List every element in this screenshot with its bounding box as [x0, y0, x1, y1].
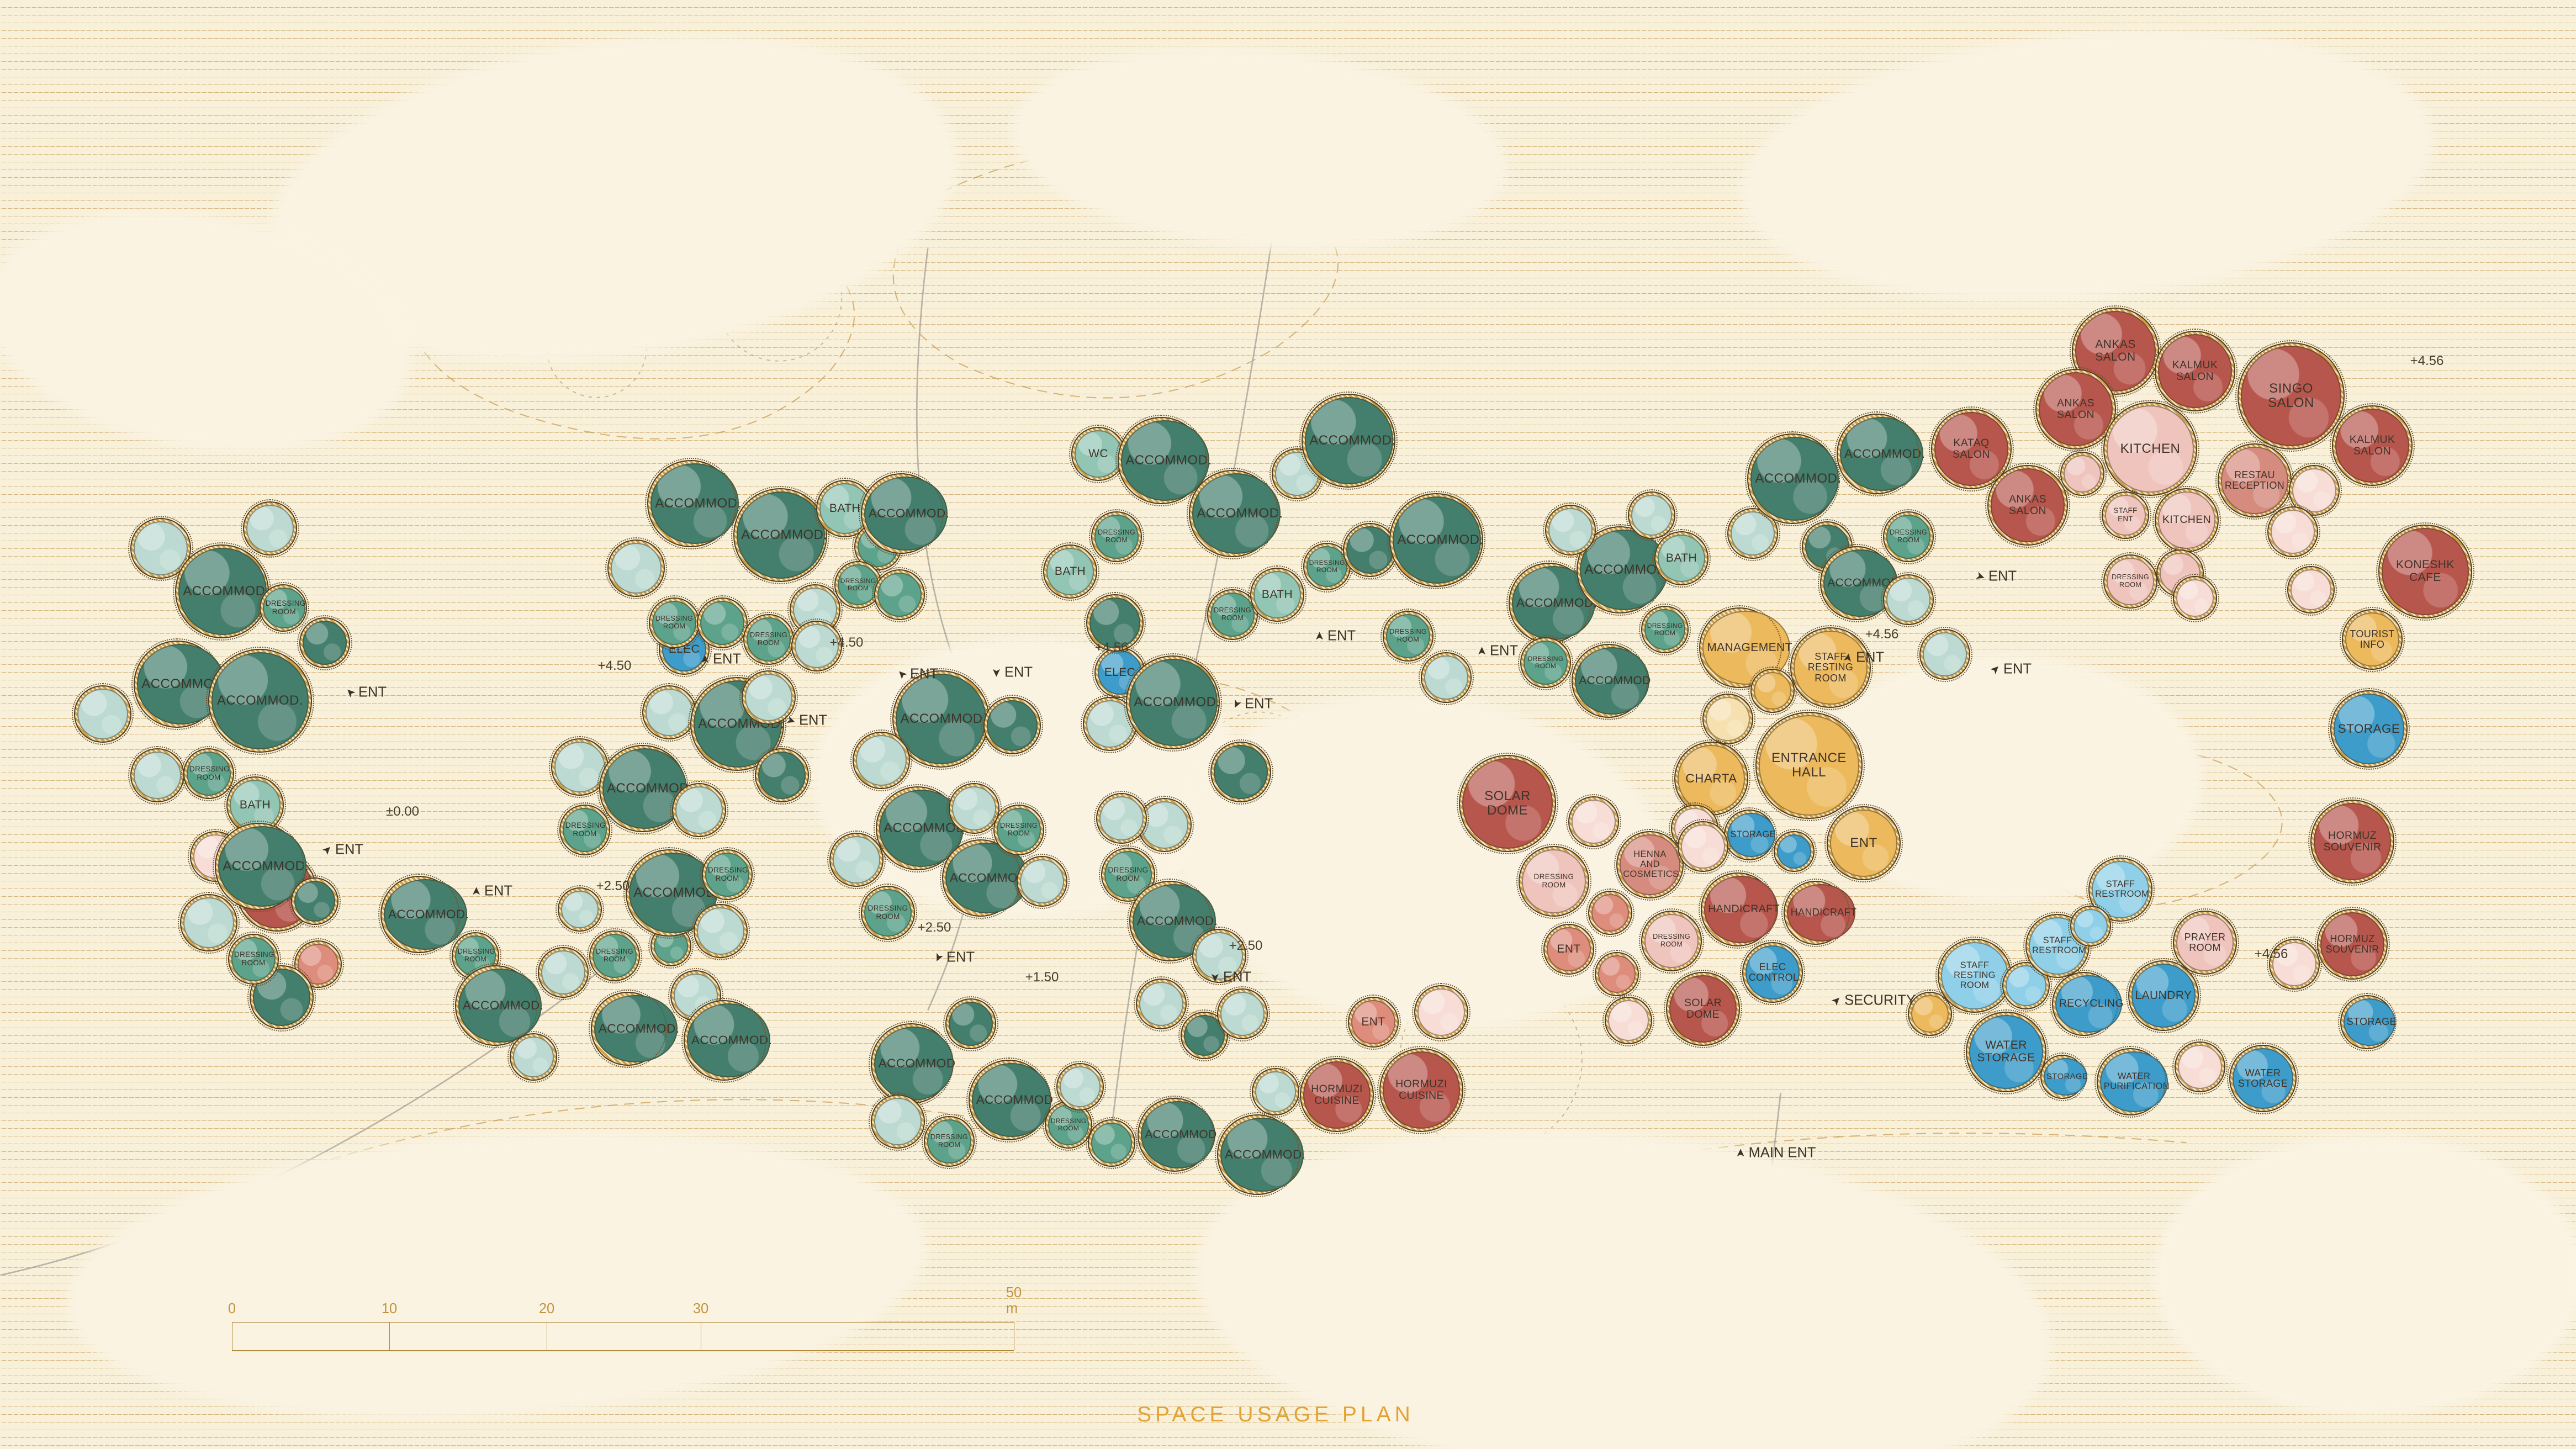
- dome: [1545, 505, 1596, 556]
- dome-label: BATH: [1256, 589, 1298, 601]
- annotation-ent: ➤ENT: [992, 665, 1033, 681]
- dome-dressing-room: DRESSING ROOM: [559, 805, 610, 855]
- dome-kitchen: KITCHEN: [2155, 488, 2219, 552]
- dome: [672, 783, 726, 837]
- annotation-security: ➤SECURITY: [1832, 993, 1916, 1009]
- annotation-ent: ➤ENT: [1843, 650, 1884, 666]
- dome-label: ACCOMMOD.: [741, 528, 821, 542]
- dome-label: ENT: [1549, 943, 1588, 956]
- annotation-text: ENT: [910, 667, 938, 683]
- dome-label: ACCOMMOD.: [1225, 1148, 1299, 1161]
- dome-label: ACCOMMOD.: [950, 871, 1024, 885]
- direction-arrow-icon: ➤: [1475, 646, 1489, 655]
- dome: [2060, 452, 2104, 496]
- dome-label: ACCOMMOD.: [1137, 914, 1212, 928]
- dome-dressing-room: DRESSING ROOM: [1091, 511, 1142, 562]
- dome-handicraft: HANDICRAFT: [1701, 872, 1775, 946]
- dome-label: STAFF RESTING ROOM: [1945, 961, 2005, 990]
- dome-accommod-: ACCOMMOD.: [591, 992, 665, 1066]
- elevation-label: +2.50: [1229, 938, 1263, 954]
- dome-koneshk-cafe: KONESHK CAFE: [2378, 525, 2472, 618]
- elevation-label: +4.56: [1865, 627, 1899, 642]
- dome-water-purification: WATER PURIFICATION: [2097, 1048, 2164, 1115]
- annotation-ent: ➤ENT: [700, 652, 741, 668]
- annotation-text: ENT: [713, 652, 741, 668]
- dome-label: WATER PURIFICATION: [2104, 1072, 2165, 1092]
- dome-label: ENT: [1834, 836, 1894, 850]
- dome-label: ACCOMMOD.: [633, 886, 713, 900]
- dome-dressing-room: DRESSING ROOM: [993, 805, 1044, 855]
- dome: [130, 748, 184, 802]
- dome-label: WATER STORAGE: [2236, 1068, 2290, 1090]
- dome-dressing-room: DRESSING ROOM: [702, 849, 753, 900]
- dome-label: DRESSING ROOM: [655, 615, 694, 630]
- annotation-text: ENT: [335, 842, 363, 858]
- dome-label: DRESSING ROOM: [840, 578, 876, 592]
- dome-label: ACCOMMOD: [1579, 675, 1645, 688]
- dome-label: SOLAR DOME: [1673, 997, 1733, 1020]
- dome: [874, 569, 925, 620]
- dome-label: ACCOMMOD: [1827, 577, 1893, 590]
- dome-label: DRESSING ROOM: [565, 822, 604, 838]
- dome-label: DRESSING ROOM: [1889, 529, 1928, 544]
- scale-bar-tick: [547, 1322, 547, 1350]
- dome-label: PRAYER ROOM: [2180, 932, 2230, 954]
- dome-water-storage: WATER STORAGE: [2229, 1045, 2297, 1112]
- scale-bar-bottom-line: [232, 1350, 1014, 1351]
- scale-bar-tick: [389, 1322, 390, 1350]
- dome-hormuz-souvenir: HORMUZ SOUVENIR: [2317, 909, 2388, 980]
- dome-label: STORAGE: [2337, 722, 2400, 736]
- dome-label: ACCOMMOD: [607, 781, 683, 796]
- dome: [538, 947, 589, 998]
- dome-dressing-room: DRESSING ROOM: [649, 597, 700, 648]
- dome-staff-ent: STAFF ENT: [2102, 491, 2149, 539]
- dome-bath: BATH: [1250, 568, 1304, 622]
- dome-accommod-: ACCOMMOD.: [1302, 394, 1395, 488]
- annotation-ent: ➤ENT: [934, 950, 975, 966]
- dome-label: STAFF ENT: [2108, 507, 2143, 523]
- dome: [1883, 574, 1934, 625]
- dome-label: DRESSING ROOM: [1051, 1118, 1086, 1132]
- dome-label: ACCOMMOD.: [1134, 695, 1213, 710]
- dome-dressing-room: DRESSING ROOM: [589, 930, 640, 981]
- dome-ankas-salon: ANKAS SALON: [2035, 369, 2116, 449]
- direction-arrow-icon: ➤: [990, 668, 1003, 677]
- dome-label: STORAGE: [2046, 1072, 2085, 1081]
- dome-label: ACCOMMOD.: [900, 712, 981, 726]
- dome-label: DRESSING ROOM: [749, 632, 788, 647]
- dome: [2175, 1041, 2225, 1092]
- dome-elec-control: ELEC CONTROL: [1742, 942, 1803, 1003]
- dome-label: KITCHEN: [2111, 442, 2189, 456]
- dome-solar-dome: SOLAR DOME: [1666, 972, 1740, 1046]
- dome-accommod-: ACCOMMOD.: [215, 823, 302, 910]
- dome-dressing-room: DRESSING ROOM: [1641, 606, 1689, 653]
- dome-label: SINGO SALON: [2246, 382, 2336, 410]
- dome: [1774, 831, 1815, 872]
- dome-accommod: ACCOMMOD: [969, 1060, 1049, 1140]
- dome-label: KITCHEN: [2161, 514, 2212, 526]
- annotation-text: ENT: [1856, 650, 1884, 666]
- dome-label: ANKAS SALON: [2043, 398, 2109, 421]
- dome: [2070, 906, 2111, 946]
- dome-label: LAUNDRY: [2135, 990, 2192, 1002]
- dome-label: DRESSING ROOM: [458, 948, 493, 963]
- sand-patch: [2154, 1135, 2576, 1416]
- dome-accommod-: ACCOMMOD.: [1126, 655, 1220, 749]
- dome-label: DRESSING ROOM: [867, 905, 908, 921]
- dome-accommod: ACCOMMOD: [871, 1023, 951, 1104]
- dome-label: ACCOMMOD: [879, 1057, 950, 1070]
- dome-singo-salon: SINGO SALON: [2238, 342, 2345, 449]
- dome-ent: ENT: [1543, 924, 1594, 975]
- dome-label: ACCOMMOD.: [1125, 453, 1205, 468]
- dome: [510, 1033, 557, 1081]
- dome-label: KALMUK SALON: [2162, 359, 2228, 383]
- dome-label: ENT: [1354, 1016, 1393, 1029]
- annotation-text: ENT: [1490, 643, 1518, 659]
- dome-water-storage: WATER STORAGE: [1966, 1012, 2046, 1092]
- dome-label: STORAGE: [1730, 830, 1772, 840]
- dome-label: DRESSING ROOM: [234, 951, 273, 967]
- dome-accommod-: ACCOMMOD.: [733, 488, 827, 582]
- elevation-label: +2.50: [918, 920, 951, 935]
- direction-arrow-icon: ➤: [1208, 972, 1222, 982]
- dome-label: ACCOMMOD.: [1584, 563, 1664, 577]
- scale-bar-tick: [701, 1322, 701, 1350]
- dome: [1588, 891, 1632, 935]
- dome-label: DRESSING ROOM: [2109, 574, 2151, 589]
- dome-label: DRESSING ROOM: [999, 822, 1038, 837]
- dome-label: ACCOMMOD.: [183, 584, 262, 599]
- dome-dressing-room: DRESSING ROOM: [260, 584, 307, 632]
- dome-label: ELEC CONTROL: [1749, 962, 1796, 983]
- dome-storage: STORAGE: [2340, 995, 2394, 1049]
- dome-label: HORMUZ SOUVENIR: [2324, 934, 2381, 955]
- dome-label: ACCOMMOD.: [216, 694, 304, 708]
- dome-label: DRESSING ROOM: [1389, 628, 1427, 643]
- dome: [1702, 694, 1753, 744]
- dome-label: ACCOMMOD.: [691, 1034, 766, 1047]
- dome-label: HORMUZ SOUVENIR: [2318, 830, 2387, 853]
- dome-restau-reception: RESTAU RECEPTION: [2218, 443, 2292, 517]
- dome: [1595, 952, 1639, 996]
- dome: [299, 617, 350, 668]
- annotation-text: ENT: [1004, 665, 1033, 681]
- dome-dressing-room: DRESSING ROOM: [861, 886, 915, 940]
- dome-label: DRESSING ROOM: [1097, 529, 1136, 544]
- dome: [853, 732, 910, 789]
- dome-label: RECYCLING: [2059, 998, 2119, 1009]
- dome-label: DRESSING ROOM: [708, 866, 747, 882]
- dome-label: ENTRANCE HALL: [1764, 751, 1854, 780]
- dome-label: DRESSING ROOM: [595, 948, 634, 963]
- dome-accommod-: ACCOMMOD.: [647, 460, 734, 547]
- dome-label: DRESSING ROOM: [1107, 866, 1149, 882]
- dome-tourist-info: TOURIST INFO: [2342, 609, 2403, 670]
- dome: [1210, 742, 1271, 802]
- scale-bar-top-line: [232, 1322, 1014, 1323]
- dome-accommod-: ACCOMMOD.: [380, 876, 458, 953]
- annotation-ent: ➤ENT: [1210, 970, 1251, 986]
- dome: [1568, 796, 1619, 847]
- dome-hormuzi-cuisine: HORMUZI CUISINE: [1379, 1048, 1463, 1132]
- dome-accommod-: ACCOMMOD.: [455, 965, 536, 1046]
- dome-label: ANKAS SALON: [2080, 339, 2152, 363]
- dome-charta: CHARTA: [1674, 742, 1748, 816]
- dome: [180, 894, 237, 951]
- dome-accommod-: ACCOMMOD.: [1389, 493, 1483, 587]
- dome-recycling: RECYCLING: [2052, 972, 2116, 1036]
- dome-accommod: ACCOMMOD: [1138, 1098, 1212, 1172]
- dome-storage: STORAGE: [2040, 1055, 2085, 1099]
- dome: [2287, 566, 2335, 614]
- elevation-label: +4.56: [2255, 946, 2288, 962]
- dome-label: HANDICRAFT: [1708, 903, 1774, 915]
- dome-label: DRESSING ROOM: [1309, 559, 1345, 574]
- dome-dressing-room: DRESSING ROOM: [1883, 511, 1934, 562]
- dome: [1088, 1119, 1135, 1167]
- dome: [1096, 793, 1147, 844]
- dome-hormuz-souvenir: HORMUZ SOUVENIR: [2310, 800, 2394, 884]
- annotation-ent: ➤ENT: [1232, 696, 1273, 712]
- dome: [1136, 979, 1187, 1029]
- dome: [1252, 1068, 1299, 1115]
- annotation-ent: ➤ENT: [1477, 643, 1518, 659]
- dome: [1750, 669, 1795, 713]
- dome: [1017, 856, 1067, 907]
- annotation-text: MAIN ENT: [1749, 1145, 1816, 1161]
- dome-label: STORAGE: [2347, 1017, 2393, 1027]
- dome: [1628, 491, 1675, 539]
- annotation-text: ENT: [1245, 696, 1273, 712]
- dome-label: HANDICRAFT: [1791, 907, 1852, 918]
- dome-storage: STORAGE: [2330, 690, 2408, 768]
- dome: [949, 783, 999, 834]
- dome-label: ACCOMMOD.: [463, 999, 537, 1012]
- annotation-ent: ➤ENT: [322, 842, 363, 858]
- elevation-label: +4.56: [2410, 353, 2444, 369]
- scale-bar-tick: [1014, 1322, 1014, 1350]
- dome: [2173, 576, 2217, 620]
- dome-label: ACCOMMOD.: [1197, 506, 1276, 521]
- dome-laundry: LAUNDRY: [2128, 960, 2199, 1031]
- dome-label: DRESSING ROOM: [189, 765, 228, 781]
- scale-bar-label: 10: [382, 1301, 397, 1317]
- dome-accommod-: ACCOMMOD.: [175, 544, 269, 638]
- dome-label: ACCOMMOD.: [223, 859, 302, 874]
- direction-arrow-icon: ➤: [1974, 568, 1987, 584]
- scale-bar-label: 20: [539, 1301, 554, 1317]
- annotation-ent: ➤ENT: [346, 685, 387, 701]
- dome: [607, 540, 665, 597]
- direction-arrow-icon: ➤: [698, 654, 712, 664]
- annotation-text: ENT: [1988, 569, 2017, 585]
- annotation-text: ENT: [1327, 628, 1356, 644]
- dome-label: BATH: [1049, 565, 1091, 578]
- dome: [755, 748, 809, 802]
- dome-wc: WC: [1071, 427, 1125, 481]
- dome-hormuzi-cuisine: HORMUZI CUISINE: [1300, 1058, 1374, 1132]
- dome: [697, 597, 748, 648]
- dome-label: DRESSING ROOM: [1526, 655, 1565, 670]
- dome-label: WATER STORAGE: [1973, 1039, 2039, 1064]
- dome-ent: ENT: [1348, 997, 1399, 1048]
- dome-bath: BATH: [1043, 544, 1097, 599]
- dome-label: WC: [1077, 448, 1119, 461]
- dome-accommod-: ACCOMMOD.: [1837, 414, 1917, 494]
- direction-arrow-icon: ➤: [1734, 1148, 1748, 1157]
- dome-label: ACCOMMOD.: [388, 908, 463, 921]
- direction-arrow-icon: ➤: [1313, 631, 1326, 641]
- dome-prayer-room: PRAYER ROOM: [2173, 911, 2237, 975]
- dome-storage: STORAGE: [1724, 810, 1775, 860]
- dome-label: HORMUZI CUISINE: [1387, 1078, 1456, 1102]
- dome-staff-resting-room: STAFF RESTING ROOM: [1790, 627, 1871, 708]
- dome-label: ACCOMMOD.: [869, 507, 943, 520]
- annotation-ent: ➤ENT: [1991, 662, 2032, 678]
- dome-accommod-: ACCOMMOD.: [1118, 417, 1205, 504]
- dome-accommod-: ACCOMMOD.: [861, 473, 941, 554]
- direction-arrow-icon: ➤: [784, 712, 798, 728]
- dome: [558, 887, 602, 932]
- dome-label: STAFF RESTROOM: [2095, 880, 2146, 900]
- dome: [983, 697, 1041, 754]
- dome-label: ACCOMMOD.: [1516, 596, 1591, 610]
- dome-kalmuk-salon: KALMUK SALON: [2155, 331, 2235, 411]
- dome-accommod-: ACCOMMOD.: [134, 641, 221, 728]
- annotation-text: ENT: [946, 950, 975, 966]
- dome: [291, 877, 338, 925]
- annotation-ent: ➤ENT: [1315, 628, 1356, 644]
- annotation-ent: ➤ENT: [472, 884, 512, 900]
- dome: [1217, 988, 1268, 1039]
- dome-label: RESTAU RECEPTION: [2225, 470, 2285, 491]
- dome: [74, 685, 131, 743]
- dome: [1414, 985, 1468, 1039]
- dome-dressing-room: DRESSING ROOM: [183, 748, 234, 799]
- dome: [945, 998, 996, 1049]
- dome-label: ACCOMMOD.: [1755, 472, 1834, 486]
- annotation-text: ENT: [1223, 970, 1251, 986]
- dome-label: KONESHK CAFE: [2386, 559, 2464, 584]
- annotation-text: SECURITY: [1844, 993, 1916, 1009]
- dome-dressing-room: DRESSING ROOM: [1519, 846, 1589, 917]
- scale-bar-tick: [232, 1322, 232, 1350]
- dome-kalmuk-salon: KALMUK SALON: [2332, 405, 2413, 486]
- dome-dressing-room: DRESSING ROOM: [1383, 611, 1434, 662]
- dome-label: SOLAR DOME: [1467, 789, 1548, 818]
- dome-label: DRESSING ROOM: [266, 600, 303, 616]
- dome-label: ACCOMMOD.: [1844, 447, 1919, 461]
- dome-label: HENNA AND COSMETICS: [1623, 850, 1677, 879]
- dome-label: ANKAS SALON: [1995, 494, 2061, 517]
- scale-bar-label: 0: [228, 1301, 236, 1317]
- dome-dressing-room: DRESSING ROOM: [1641, 911, 1702, 971]
- dome-label: BATH: [1660, 552, 1702, 565]
- elevation-label: ±0.00: [386, 804, 419, 819]
- elevation-label: +4.50: [598, 658, 632, 674]
- dome-accommod-: ACCOMMOD.: [1217, 1114, 1298, 1195]
- dome-entrance-hall: ENTRANCE HALL: [1755, 712, 1863, 819]
- dome-label: DRESSING ROOM: [930, 1134, 969, 1149]
- dome: [642, 685, 696, 739]
- dome-dressing-room: DRESSING ROOM: [1520, 637, 1571, 688]
- dome-dressing-room: DRESSING ROOM: [2103, 554, 2157, 609]
- dome: [871, 1094, 925, 1149]
- dome-label: DRESSING ROOM: [1213, 607, 1252, 622]
- dome-staff-resting-room: STAFF RESTING ROOM: [1938, 939, 2012, 1013]
- space-usage-plan: ACCOMMOD.DRESSING ROOMACCOMMOD.ACCOMMOD.…: [0, 0, 2576, 1449]
- direction-arrow-icon: ➤: [469, 886, 483, 896]
- dome-handicraft: HANDICRAFT: [1784, 881, 1848, 945]
- elevation-label: +4.56: [1095, 640, 1129, 655]
- scale-bar-label: 30: [693, 1301, 708, 1317]
- dome: [1421, 652, 1472, 703]
- dome-label: KATAQ SALON: [1938, 437, 2004, 461]
- dome-label: ACCOMMOD.: [599, 1022, 673, 1035]
- elevation-label: +4.50: [830, 635, 864, 651]
- dome-accommod-: ACCOMMOD.: [1747, 433, 1838, 524]
- dome-label: ACCOMMOD.: [655, 496, 734, 511]
- dome: [1919, 629, 1970, 680]
- dome-label: ACCOMMOD.: [1309, 433, 1389, 448]
- dome-accommod-: ACCOMMOD.: [208, 649, 312, 753]
- dome-label: KALMUK SALON: [2339, 434, 2405, 457]
- annotation-ent: ➤ENT: [897, 667, 938, 683]
- dome-accommod-: ACCOMMOD.: [684, 1000, 764, 1081]
- dome-solar-dome: SOLAR DOME: [1459, 755, 1556, 852]
- dome-label: TOURIST INFO: [2348, 629, 2396, 651]
- dome: [2267, 506, 2318, 557]
- dome-accommod: ACCOMMOD: [1820, 546, 1894, 620]
- dome: [1343, 523, 1397, 577]
- dome-label: DRESSING ROOM: [1647, 622, 1683, 637]
- dome: [1605, 997, 1652, 1044]
- annotation-text: ENT: [799, 713, 827, 729]
- dome-label: ACCOMMOD.: [1397, 533, 1477, 547]
- dome-ankas-salon: ANKAS SALON: [1987, 465, 2068, 546]
- dome-dressing-room: DRESSING ROOM: [924, 1116, 975, 1167]
- dome-accommod-: ACCOMMOD.: [1189, 470, 1276, 557]
- dome-label: BATH: [233, 799, 278, 812]
- dome: [829, 833, 884, 887]
- dome-label: HORMUZI CUISINE: [1307, 1083, 1367, 1107]
- annotation-main-ent: ➤MAIN ENT: [1736, 1145, 1816, 1161]
- annotation-text: ENT: [2003, 662, 2032, 678]
- annotation-ent: ➤ENT: [786, 713, 827, 729]
- dome-accommod: ACCOMMOD: [1572, 644, 1646, 718]
- dome-dressing-room: DRESSING ROOM: [228, 934, 279, 985]
- dome-label: CHARTA: [1681, 772, 1742, 785]
- dome-label: ACCOMMOD: [976, 1093, 1048, 1107]
- elevation-label: +2.50: [596, 879, 630, 894]
- dome-dressing-room: DRESSING ROOM: [743, 614, 794, 665]
- plan-title: SPACE USAGE PLAN: [1137, 1403, 1414, 1427]
- dome-label: MANAGEMENT: [1707, 642, 1785, 654]
- dome-label: DRESSING ROOM: [1648, 933, 1695, 948]
- dome-label: ACCOMMOD: [1145, 1129, 1211, 1141]
- dome-label: DRESSING ROOM: [1525, 873, 1582, 889]
- dome-label: ACCOMMOD: [884, 821, 959, 835]
- dome: [243, 501, 297, 556]
- elevation-label: +1.50: [1025, 970, 1059, 985]
- dome: [1056, 1063, 1104, 1110]
- annotation-ent: ➤ENT: [1976, 569, 2017, 585]
- scale-bar-label: 50 m: [1006, 1285, 1022, 1317]
- dome: [1678, 821, 1728, 872]
